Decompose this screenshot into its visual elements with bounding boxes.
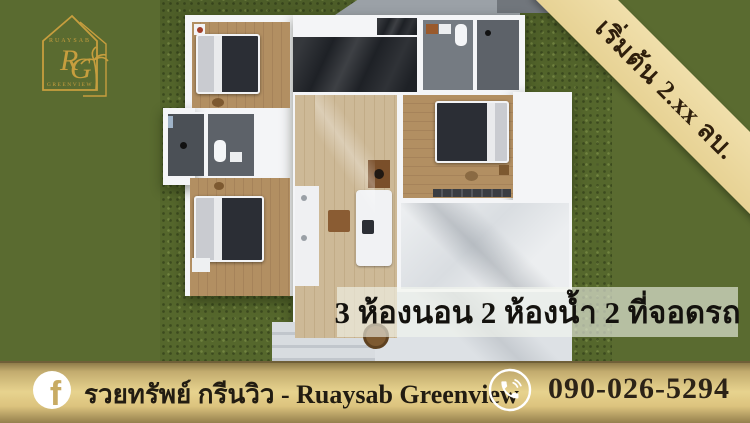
toilet <box>455 24 467 46</box>
speaker-cone <box>374 169 384 179</box>
bed <box>196 34 260 94</box>
toilet <box>214 140 226 162</box>
bathroom-left <box>168 112 254 176</box>
carport-roof <box>335 0 520 15</box>
counter-item <box>301 235 307 241</box>
logo-arc-bottom: GREENVIEW <box>47 82 93 88</box>
bedroom-bottom-left <box>190 178 290 296</box>
rug <box>212 98 224 107</box>
facebook-page-name: รวยทรัพย์ กรีนวิว - Ruaysab Greenview <box>84 374 519 415</box>
bed <box>194 196 264 262</box>
bath-box <box>230 152 242 162</box>
rug <box>465 171 478 181</box>
bedroom-right <box>403 95 513 198</box>
window <box>168 116 173 128</box>
garage-slab <box>398 200 572 292</box>
sink <box>439 24 451 34</box>
facebook-icon: f <box>33 371 71 409</box>
floor-lamp <box>180 142 187 149</box>
bedroom-top-left <box>192 22 290 108</box>
logo-house-icon: RUAYSAB R G GREENVIEW <box>36 12 122 100</box>
logo-monogram-g: G <box>70 52 92 85</box>
phone-icon <box>488 368 532 412</box>
house-right-wing <box>513 92 572 204</box>
kitchen-dark-counter-upper <box>377 18 417 35</box>
kitchen-dark-counter <box>293 37 417 92</box>
brand-logo: RUAYSAB R G GREENVIEW <box>36 12 122 100</box>
nightstand <box>499 165 509 175</box>
bed <box>435 101 509 163</box>
sunlight-streak <box>315 95 375 215</box>
decor-dot <box>197 27 203 33</box>
dresser <box>192 258 210 272</box>
sofa-cushion-dark <box>362 220 374 234</box>
ad-image: 3 ห้องนอน 2 ห้องน้ำ 2 ที่จอดรถ เริ่มต้น … <box>0 0 750 423</box>
counter-item <box>301 195 307 201</box>
sink-cabinet <box>426 24 438 34</box>
features-banner: 3 ห้องนอน 2 ห้องน้ำ 2 ที่จอดรถ <box>337 287 738 337</box>
rug <box>214 182 224 190</box>
phone-number: 090-026-5294 <box>548 372 730 406</box>
bathroom-top <box>423 20 473 90</box>
shower-room <box>477 20 519 90</box>
drain <box>485 30 491 36</box>
wardrobe <box>433 189 511 197</box>
features-text: 3 ห้องนอน 2 ห้องน้ำ 2 ที่จอดรถ <box>335 287 741 337</box>
